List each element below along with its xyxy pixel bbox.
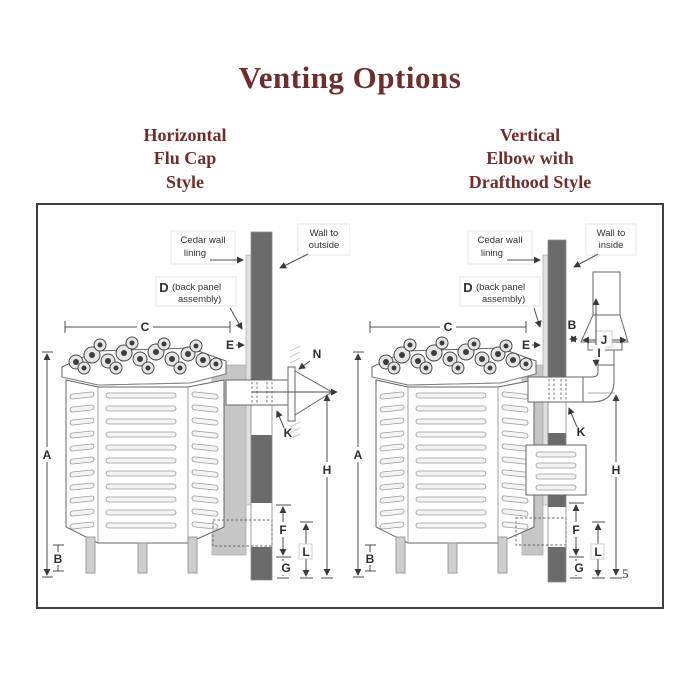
dim-K: K (569, 408, 586, 439)
dim-label-J: J (601, 333, 608, 347)
wall (246, 232, 272, 580)
dim-G: G (277, 559, 292, 578)
dim-B-legs: B (365, 545, 376, 571)
elbow (583, 365, 614, 402)
dim-label-B-gap: B (568, 318, 577, 332)
dim-C: C (65, 320, 230, 334)
back-panel-letter: D (463, 280, 472, 295)
dim-label-L: L (302, 545, 309, 559)
left-diagram-svg: A B C E N K H F G L (40, 215, 350, 605)
dim-label-C: C (444, 320, 453, 334)
cedar-line1: Cedar wall (181, 235, 226, 246)
wall-to-line1: Wall to (310, 228, 339, 239)
dim-H: H (320, 395, 334, 578)
dim-label-A: A (354, 448, 363, 462)
dim-label-B: B (54, 552, 63, 566)
dim-A: A (40, 352, 54, 577)
drafthood-pipe (593, 272, 620, 315)
label-back-panel: D (back panel assembly) (460, 277, 540, 327)
wall-to-line2: outside (309, 240, 340, 251)
back-panel-letter: D (159, 280, 168, 295)
wall (543, 240, 566, 582)
dim-E: E (226, 338, 244, 352)
dim-label-I: I (597, 346, 600, 360)
dim-label-L: L (594, 545, 601, 559)
dim-B-gap: B (568, 318, 577, 339)
page-title: Venting Options (0, 60, 700, 96)
dim-label-E: E (226, 338, 234, 352)
dim-label-B-legs: B (366, 552, 375, 566)
dim-label-C: C (141, 320, 150, 334)
dim-L: L (299, 522, 313, 578)
back-panel-line2: assembly) (482, 294, 525, 305)
label-wall-to-outside: Wall to outside (280, 224, 350, 268)
dim-N: N (299, 347, 321, 369)
dim-label-F: F (279, 523, 286, 537)
right-diagram-title: Vertical Elbow with Drafthood Style (420, 124, 640, 194)
dim-F: F (569, 503, 584, 557)
dim-F: F (276, 505, 291, 557)
dim-label-H: H (323, 463, 332, 477)
right-diagram-svg: A B C E B J I K H F (350, 215, 660, 605)
page: { "page": { "title": "Venting Options", … (0, 0, 700, 700)
wall-to-line2: inside (599, 240, 624, 251)
cedar-line2: lining (481, 248, 503, 259)
dim-label-A: A (43, 448, 52, 462)
dim-label-E: E (522, 338, 530, 352)
dim-label-K: K (577, 425, 586, 439)
label-cedar-wall-lining: Cedar wall lining (171, 231, 243, 264)
vent-duct (528, 377, 583, 402)
sauna-heater (372, 337, 536, 573)
dim-label-G: G (574, 561, 583, 575)
back-panel-line2: assembly) (178, 294, 221, 305)
label-back-panel: D (back panel assembly) (156, 277, 242, 329)
dim-E: E (522, 338, 540, 352)
back-panel-line1: (back panel (172, 282, 221, 293)
dim-label-N: N (313, 347, 322, 361)
page-number: 5 (622, 566, 642, 582)
wall-vent-grille (526, 445, 586, 495)
cedar-line2: lining (184, 248, 206, 259)
dim-label-H: H (612, 463, 621, 477)
cedar-line1: Cedar wall (478, 235, 523, 246)
left-diagram-title: Horizontal Flu Cap Style (95, 124, 275, 194)
wall-to-line1: Wall to (597, 228, 626, 239)
dim-A: A (351, 352, 365, 577)
dim-label-F: F (572, 523, 579, 537)
dim-B-legs: B (53, 545, 64, 571)
sauna-heater (62, 337, 226, 573)
dim-label-G: G (281, 561, 290, 575)
label-wall-to-inside: Wall to inside (574, 224, 636, 267)
dim-label-K: K (284, 426, 293, 440)
dim-L: L (591, 522, 605, 578)
dim-C: C (370, 320, 526, 334)
back-panel-line1: (back panel (476, 282, 525, 293)
dim-G: G (570, 559, 585, 578)
label-cedar-wall-lining: Cedar wall lining (468, 231, 540, 264)
